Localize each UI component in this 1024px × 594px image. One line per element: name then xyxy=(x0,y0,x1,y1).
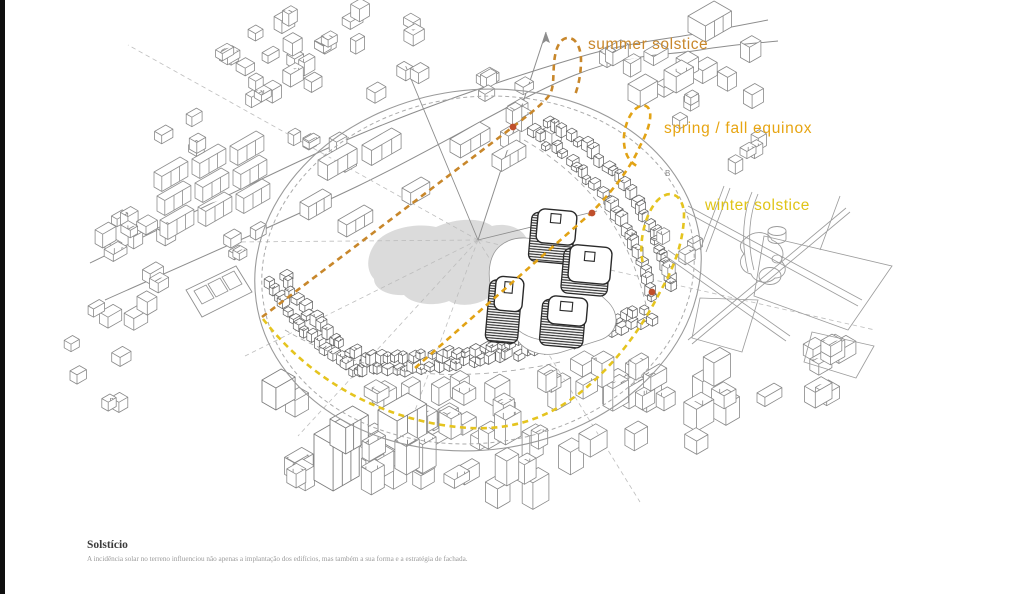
svg-text:summer solstice: summer solstice xyxy=(588,36,708,53)
svg-text:winter solstice: winter solstice xyxy=(704,197,810,214)
svg-text:Solstício: Solstício xyxy=(87,539,128,551)
svg-text:B: B xyxy=(665,169,670,178)
svg-text:A incidência solar no terreno: A incidência solar no terreno influencio… xyxy=(87,555,468,563)
svg-text:spring / fall equinox: spring / fall equinox xyxy=(664,120,812,137)
